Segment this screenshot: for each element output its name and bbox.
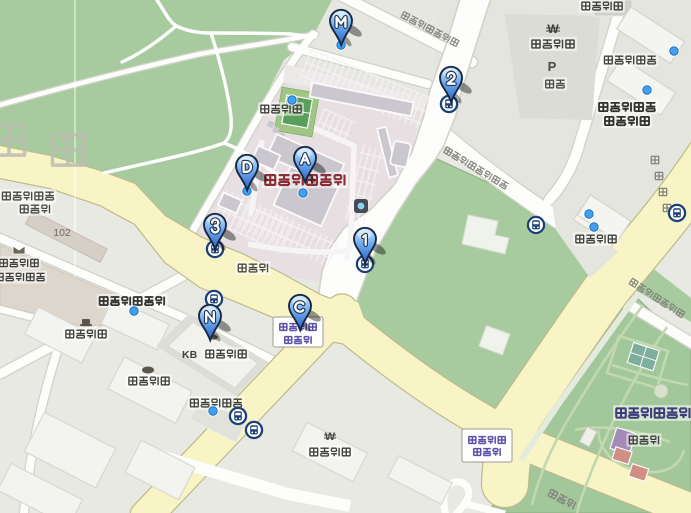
svg-text:102: 102 [53,227,71,239]
svg-text:P: P [548,59,557,74]
svg-text:W: W [325,431,336,443]
svg-text:KB: KB [182,349,198,361]
svg-text:W: W [547,22,559,36]
